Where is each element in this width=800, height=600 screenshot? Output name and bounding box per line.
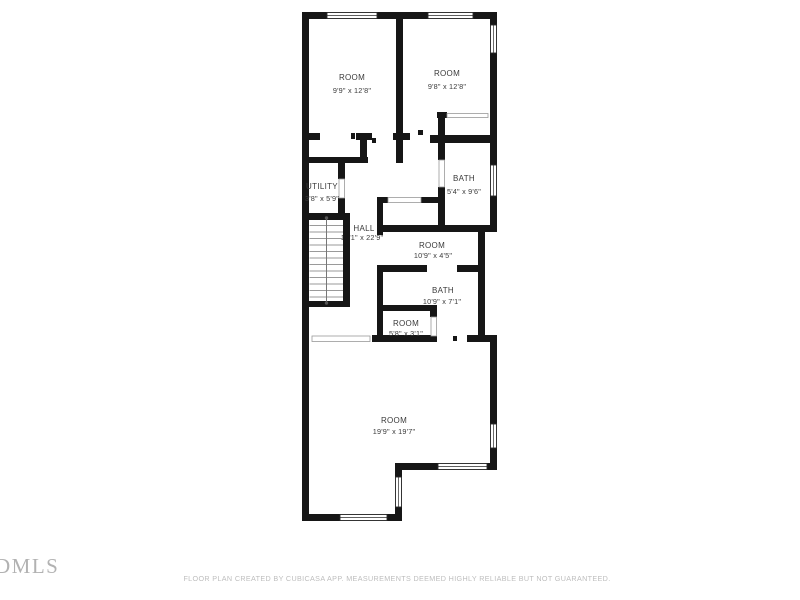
bath-lower-name: BATH	[432, 286, 454, 295]
bath-upper-dims: 5'4" x 9'6"	[447, 187, 481, 196]
window	[491, 424, 497, 448]
wall-segment	[383, 265, 427, 272]
closet-shelf	[447, 114, 488, 118]
window	[327, 13, 377, 19]
room-top-left-name: ROOM	[339, 73, 365, 82]
room-middle-dims: 10'9" x 4'5"	[414, 251, 453, 260]
door-jamb-tick	[351, 133, 355, 139]
stairs-line-end	[325, 216, 328, 219]
room-top-right-name: ROOM	[434, 69, 460, 78]
room-large-name: ROOM	[381, 416, 407, 425]
room-top-right-dims: 9'8" x 12'8"	[428, 82, 467, 91]
wall-segment	[343, 213, 350, 307]
window	[340, 515, 387, 521]
bath-lower-dims: 10'9" x 7'1"	[423, 297, 462, 306]
door-jamb-tick	[372, 138, 376, 143]
window	[438, 464, 487, 470]
room-small-dims: 5'8" x 3'1"	[389, 329, 423, 338]
window	[491, 165, 497, 196]
room-large-dims: 19'9" x 19'7"	[373, 427, 416, 436]
window	[491, 25, 497, 53]
wall-segment	[438, 187, 445, 225]
wall-segment	[396, 19, 403, 163]
opening-upper-hall	[388, 198, 421, 203]
wall-segment	[309, 133, 320, 140]
wall-segment	[377, 197, 383, 235]
room-top-left-dims: 9'9" x 12'8"	[333, 86, 372, 95]
wall-segment	[377, 265, 383, 342]
wall-segment	[478, 225, 485, 342]
room-labels: ROOM 9'9" x 12'8" ROOM 9'8" x 12'8" UTIL…	[305, 69, 481, 436]
disclaimer-text: FLOOR PLAN CREATED BY CUBICASA APP. MEAS…	[183, 574, 610, 583]
wall-segment	[383, 197, 388, 203]
staircase	[310, 216, 344, 304]
utility-dims: 3'8" x 5'9"	[305, 194, 339, 203]
room-middle-name: ROOM	[419, 241, 445, 250]
bath-upper-name: BATH	[453, 174, 475, 183]
mls-logo: DMLS	[0, 554, 59, 579]
wall-segment	[438, 112, 445, 160]
stairs-line-end	[325, 301, 328, 304]
utility-name: UTILITY	[306, 182, 338, 191]
wall-segment	[302, 12, 309, 521]
room-small-name: ROOM	[393, 319, 419, 328]
wall-segment	[393, 133, 410, 140]
wall-segment	[421, 197, 438, 203]
wall-segment	[490, 335, 497, 470]
wall-segment	[430, 305, 437, 317]
hall-name: HALL	[353, 224, 374, 233]
wall-segment	[383, 225, 478, 232]
walls	[302, 12, 497, 521]
window	[396, 477, 402, 507]
opening-room-small-door	[431, 317, 437, 336]
wall-segment	[302, 213, 345, 220]
opening-utility-door	[339, 179, 345, 198]
opening-bath-upper-door	[439, 160, 445, 187]
window	[428, 13, 473, 19]
floor-plan: HALL 10'1" x 22'9"	[0, 0, 800, 600]
wall-segment	[338, 163, 345, 179]
door-jamb-tick	[453, 336, 457, 341]
wall-segment	[457, 265, 478, 272]
floor-plan-page: HALL 10'1" x 22'9"	[0, 0, 800, 600]
wall-segment	[306, 157, 368, 163]
opening-hall-to-large-room	[312, 336, 370, 342]
door-jamb-tick	[418, 130, 423, 135]
